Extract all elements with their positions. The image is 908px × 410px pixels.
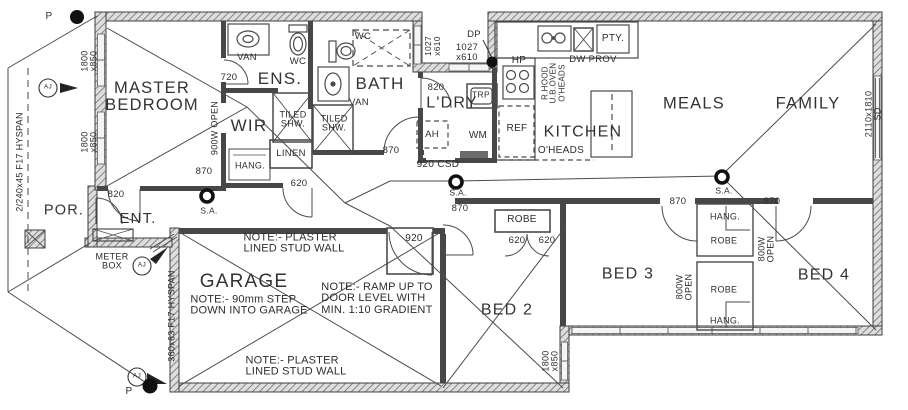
entry-door-arc — [96, 198, 122, 224]
floor-plan: MASTER BEDROOMENS.WIRBATHL'DRYKITCHENMEA… — [0, 0, 908, 410]
robe-double-doors — [505, 234, 549, 256]
doors — [96, 60, 811, 275]
linen-door-arc — [283, 188, 312, 217]
master-door-arc — [108, 189, 140, 221]
floor-plan-drawing — [0, 0, 908, 410]
bed3-door-arc — [662, 206, 697, 241]
garage-door-frame — [387, 228, 433, 274]
cavity-slider-920 — [425, 160, 455, 163]
ldry-door-arc — [421, 78, 451, 108]
bed2-door-arc — [443, 225, 473, 255]
ens-door-arc — [224, 60, 248, 84]
bath-door-arc — [384, 117, 419, 152]
garage-door-arc — [389, 232, 432, 275]
